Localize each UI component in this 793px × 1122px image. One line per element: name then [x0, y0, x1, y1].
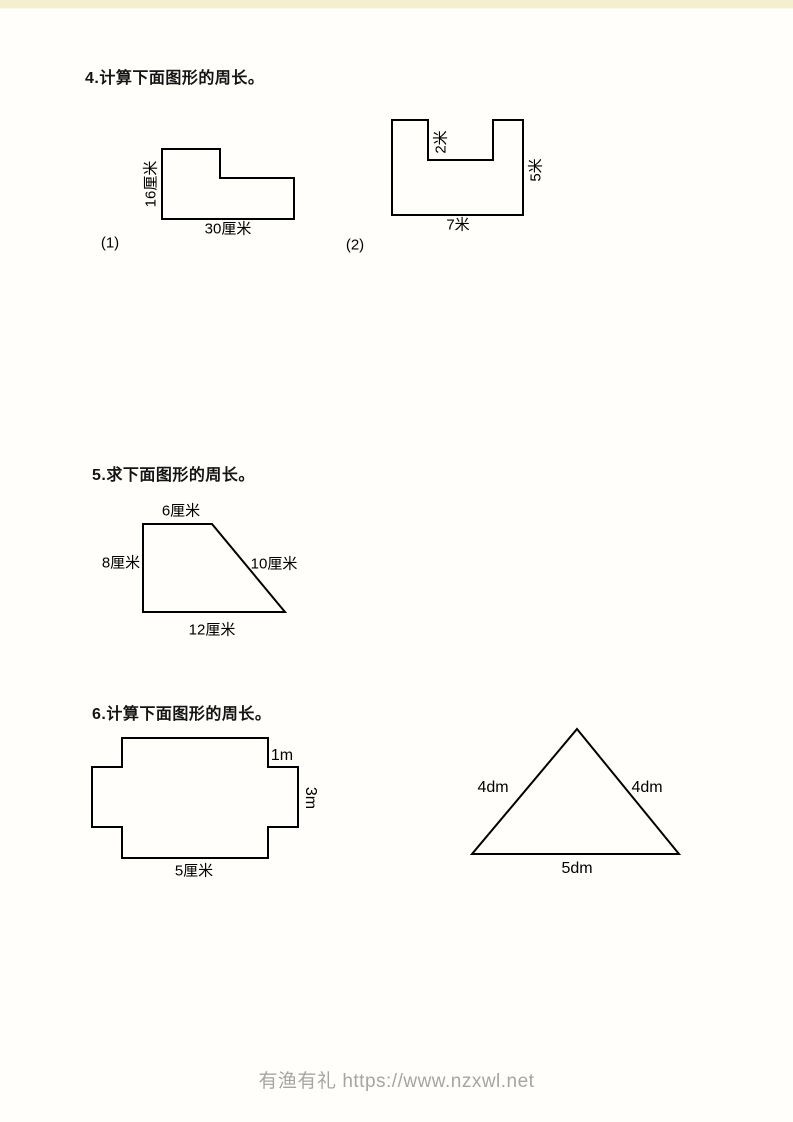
- dimension-label-right: 3m: [301, 787, 319, 809]
- dimension-label-left: 8厘米: [102, 552, 140, 573]
- problem-5-title: 5.求下面图形的周长。: [92, 461, 255, 485]
- figure-4-1-l-shape: 16厘米 30厘米 (1): [92, 138, 322, 263]
- page-top-border: [0, 0, 793, 9]
- figure-5-trapezoid: 6厘米 8厘米 10厘米 12厘米: [90, 495, 320, 645]
- problem-4-title: 4.计算下面图形的周长。: [85, 64, 264, 88]
- worksheet-page: { "page": { "top_strip_color": "#f3efcf"…: [0, 0, 793, 1122]
- footer-watermark: 有渔有礼 https://www.nzxwl.net: [0, 1066, 793, 1093]
- dimension-label-right: 4dm: [631, 779, 662, 797]
- dimension-label-bottom: 5dm: [561, 860, 592, 878]
- dimension-label-step: 1m: [271, 747, 293, 765]
- dimension-label-top: 6厘米: [162, 500, 200, 521]
- problem-6-title: 6.计算下面图形的周长。: [92, 700, 271, 724]
- dimension-label-bottom: 5厘米: [175, 860, 213, 881]
- figure-6-cross-shape: 1m 3m 5厘米: [85, 730, 330, 885]
- dimension-label-right: 5米: [525, 158, 546, 181]
- l-shape-outline: [92, 138, 322, 263]
- u-shape-outline: [340, 108, 585, 258]
- dimension-label-left: 16厘米: [140, 161, 161, 208]
- figure-4-2-u-shape: 2米 5米 7米 (2): [340, 108, 585, 258]
- figure-index-2: (2): [346, 237, 364, 254]
- dimension-label-slant: 10厘米: [251, 553, 298, 574]
- dimension-label-bottom: 12厘米: [189, 619, 236, 640]
- dimension-label-bottom: 7米: [446, 214, 469, 235]
- dimension-label-left: 4dm: [477, 779, 508, 797]
- dimension-label-bottom: 30厘米: [205, 218, 252, 239]
- figure-6-triangle: 4dm 4dm 5dm: [460, 715, 700, 885]
- figure-index-1: (1): [101, 235, 119, 252]
- dimension-label-notch: 2米: [430, 130, 451, 153]
